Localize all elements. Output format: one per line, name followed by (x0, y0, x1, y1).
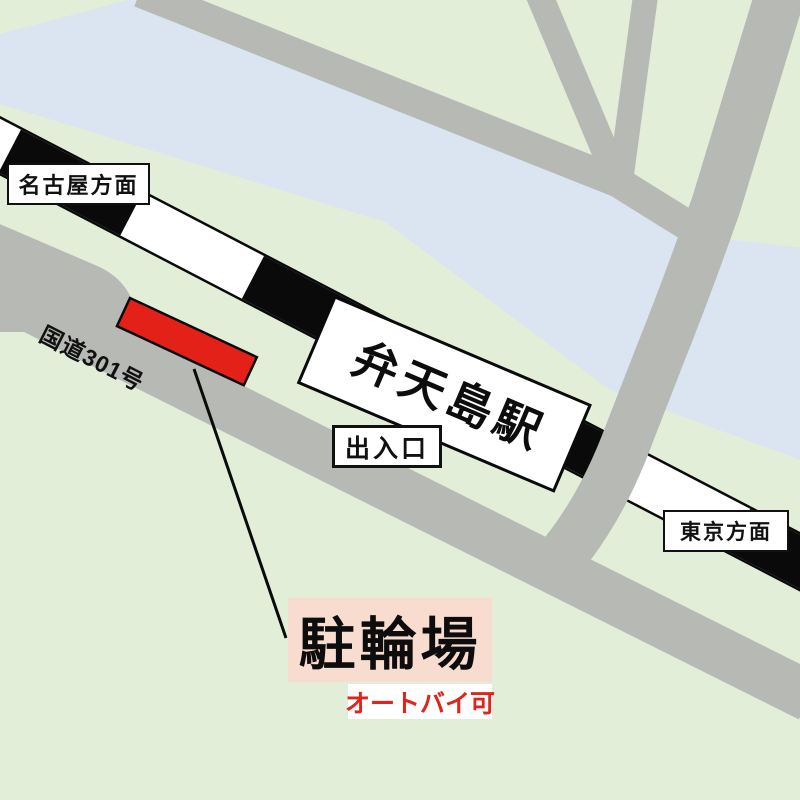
parking-title-label: 駐輪場 (288, 598, 492, 682)
nagoya-direction-label: 名古屋方面 (7, 163, 150, 205)
tokyo-direction-label: 東京方面 (663, 510, 789, 552)
motorcycles-ok-label: オートバイ可 (348, 684, 492, 719)
north-branch-road (621, 0, 646, 178)
station-area-map: 弁天島駅 名古屋方面 東京方面 出入口 国道301号 駐輪場 オートバイ可 (0, 0, 800, 800)
station-exit-label: 出入口 (332, 425, 442, 468)
